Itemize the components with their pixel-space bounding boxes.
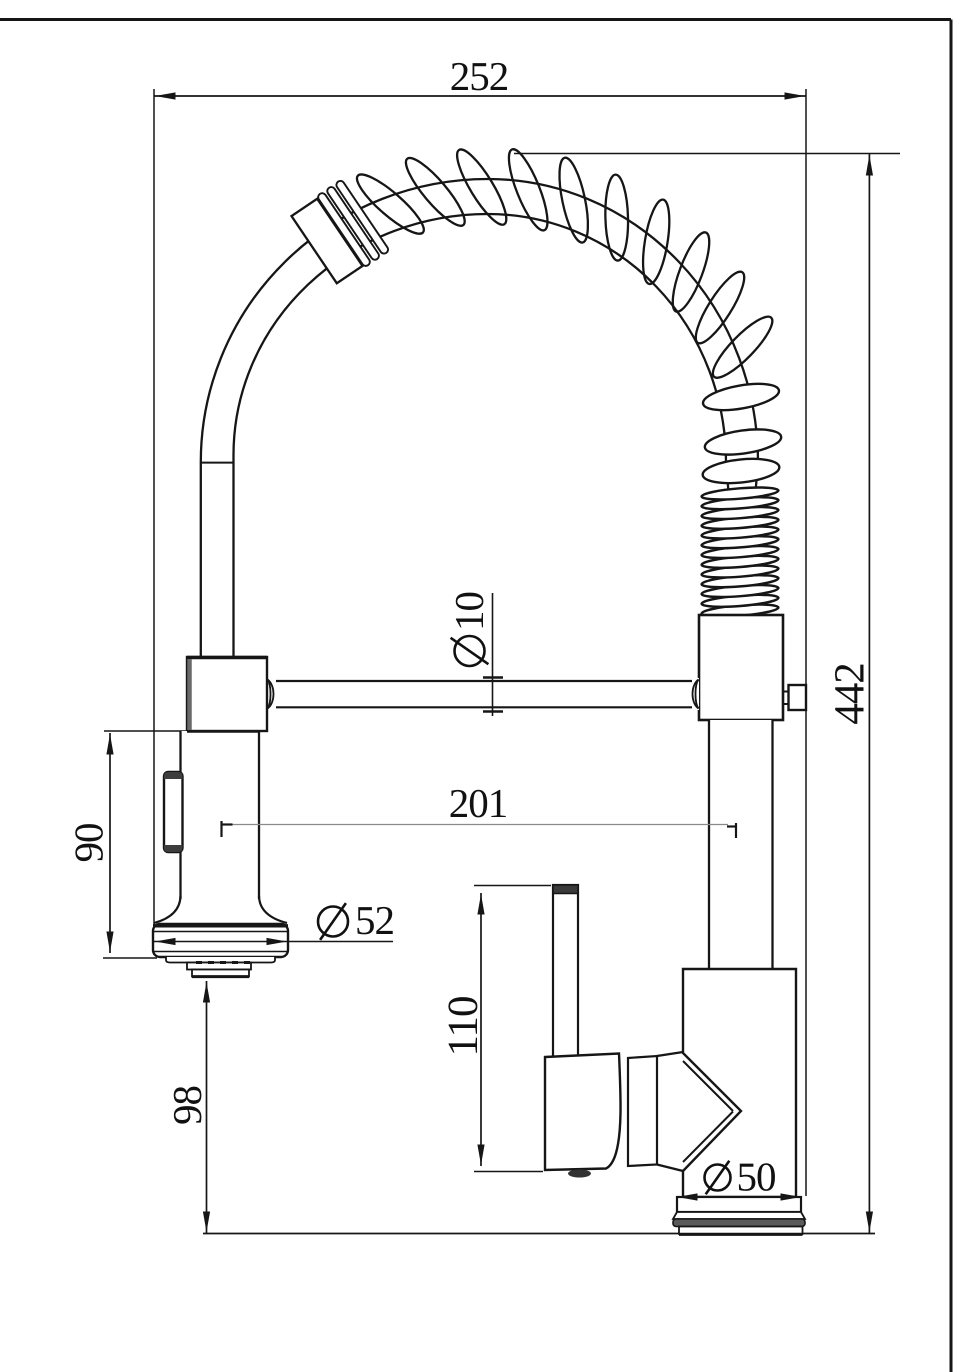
svg-text:110: 110 [440,997,487,1057]
svg-text:52: 52 [355,897,394,943]
svg-text:252: 252 [450,53,509,99]
svg-text:90: 90 [66,824,112,863]
svg-text:98: 98 [164,1086,210,1125]
svg-text:442: 442 [827,663,874,725]
svg-text:201: 201 [449,780,508,826]
svg-text:50: 50 [737,1154,776,1200]
svg-text:10: 10 [446,592,492,631]
